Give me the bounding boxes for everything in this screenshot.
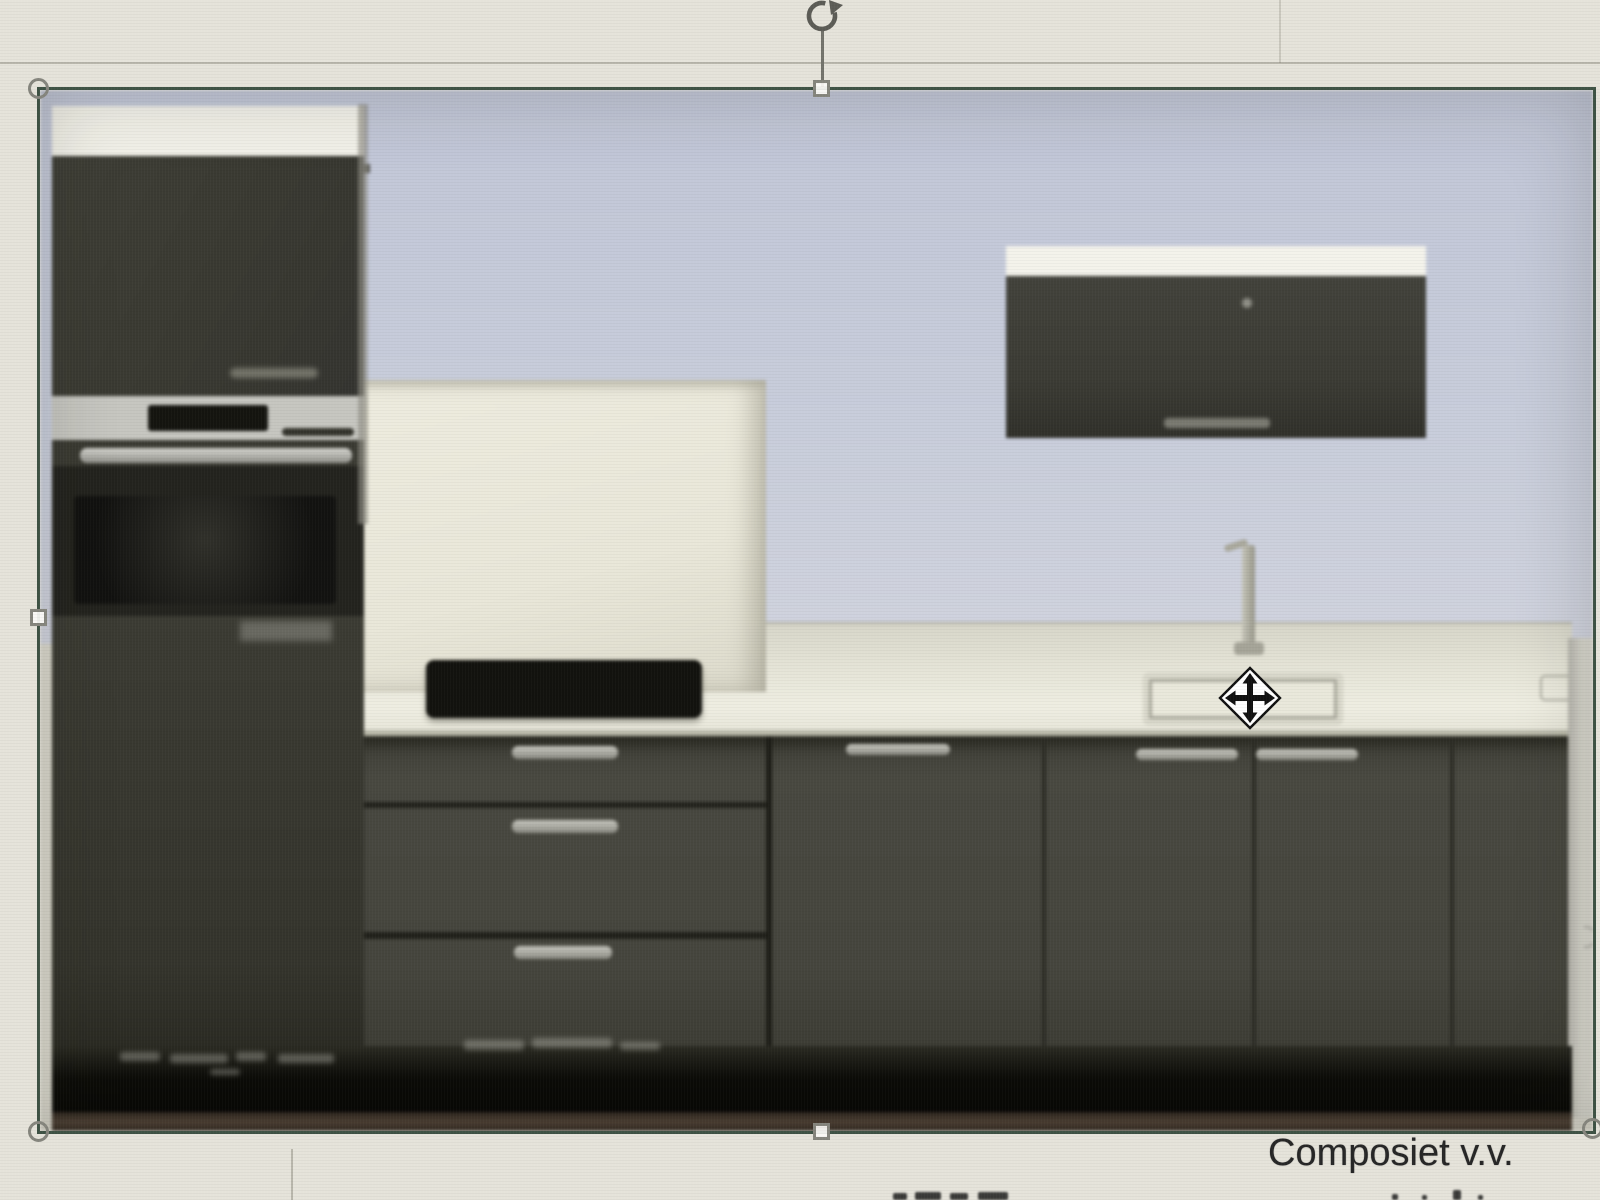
cropped-text-fragment bbox=[893, 1193, 907, 1200]
resize-handle-top-middle[interactable] bbox=[813, 80, 830, 97]
resize-handle-top-left[interactable] bbox=[28, 78, 49, 99]
cropped-text-fragment bbox=[915, 1192, 941, 1200]
cropped-text-fragment bbox=[978, 1192, 1008, 1200]
cropped-text-fragment bbox=[1453, 1190, 1461, 1200]
horizontal-guide-line bbox=[0, 62, 1600, 64]
vertical-guide-line-top bbox=[1279, 0, 1281, 63]
move-cursor-icon bbox=[1218, 666, 1282, 730]
picture-selection-border bbox=[37, 87, 1596, 1134]
cropped-text-fragment bbox=[1478, 1195, 1483, 1200]
cropped-text-fragment bbox=[950, 1193, 968, 1200]
vertical-guide-line-bottom bbox=[291, 1149, 293, 1200]
cropped-text-fragment bbox=[1392, 1194, 1398, 1200]
resize-handle-left-middle[interactable] bbox=[30, 609, 47, 626]
resize-handle-bottom-middle[interactable] bbox=[813, 1123, 830, 1140]
picture-caption: Composiet v.v. bbox=[1268, 1132, 1578, 1176]
rotate-icon[interactable] bbox=[799, 0, 845, 39]
resize-handle-bottom-right[interactable] bbox=[1582, 1118, 1600, 1139]
resize-handle-bottom-left[interactable] bbox=[28, 1121, 49, 1142]
slide-editing-area: Composiet v.v. bbox=[0, 0, 1600, 1200]
cropped-text-fragment bbox=[1422, 1195, 1427, 1200]
